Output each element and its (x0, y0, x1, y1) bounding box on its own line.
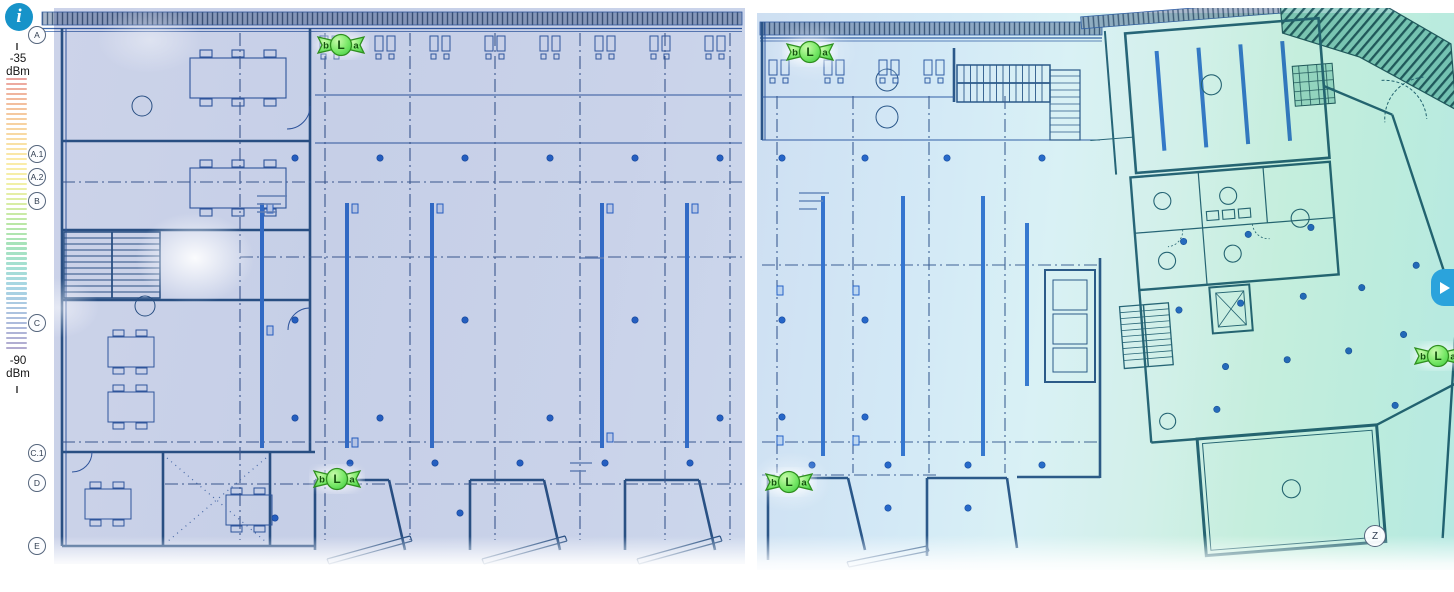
svg-text:L: L (806, 45, 813, 59)
thin-walls (66, 28, 742, 546)
ap-marker[interactable]: b L a (313, 30, 369, 60)
legend-stripe (6, 123, 27, 125)
ap-marker[interactable]: b L a (782, 37, 838, 67)
legend-stripe (6, 78, 27, 80)
legend-stripe (6, 148, 27, 150)
stairs (64, 96, 160, 316)
legend-max-label: -35dBm (0, 53, 36, 78)
legend-stripe (6, 93, 27, 95)
svg-text:a: a (801, 478, 807, 489)
ap-marker[interactable]: b L a (761, 467, 817, 497)
legend-stripe (6, 247, 27, 249)
top-wall-hatch-band (42, 12, 742, 32)
legend-stripe (6, 188, 27, 190)
legend-stripe (6, 332, 27, 334)
expand-panel-button[interactable] (1431, 269, 1454, 306)
symbol-rects (777, 286, 859, 445)
svg-text:a: a (822, 48, 828, 59)
legend-stripe (6, 158, 27, 160)
legend-stripe (6, 223, 27, 225)
legend-stripe (6, 213, 27, 215)
svg-text:L: L (333, 472, 340, 486)
legend-stripe (6, 317, 27, 319)
grid-bubble-A.2: A.2 (28, 168, 46, 186)
legend-stripe (6, 322, 27, 324)
grid-bubble-A.1: A.1 (28, 145, 46, 163)
legend-gradient-scale (6, 78, 27, 352)
legend-stripe (6, 83, 27, 85)
legend-stripe (6, 347, 27, 349)
floorplan-right[interactable] (757, 8, 1454, 575)
legend-stripe (6, 138, 27, 140)
legend-stripe (6, 108, 27, 110)
legend-stripe (6, 183, 27, 185)
legend-stripe (6, 337, 27, 339)
legend-stripe (6, 287, 27, 289)
legend-bottom-tick (16, 386, 18, 393)
ahu-room (1045, 270, 1095, 382)
legend-stripe (6, 208, 27, 210)
svg-text:a: a (349, 475, 355, 486)
grid-bubble-B: B (28, 192, 46, 210)
dock-ramps (327, 536, 722, 564)
legend-stripe (6, 113, 27, 115)
legend-stripe (6, 103, 27, 105)
legend-stripe (6, 282, 27, 284)
grid-bubble-D: D (28, 474, 46, 492)
ap-marker[interactable]: b L a (1410, 341, 1454, 371)
svg-text:b: b (323, 41, 329, 52)
legend-stripe (6, 297, 27, 299)
legend-stripe (6, 133, 27, 135)
floor-cross-marking (167, 458, 266, 542)
legend-stripe (6, 342, 27, 344)
svg-text:L: L (337, 38, 344, 52)
svg-text:b: b (771, 478, 777, 489)
sprinkler-dots (1170, 216, 1431, 425)
symbol-rects (267, 204, 698, 447)
floorplan-right-drawing (757, 8, 1454, 575)
svg-text:a: a (353, 41, 359, 52)
legend-stripe (6, 257, 27, 259)
legend-stripe (6, 193, 27, 195)
info-icon: i (16, 6, 21, 28)
legend-stripe (6, 272, 27, 274)
svg-text:b: b (792, 48, 798, 59)
legend-stripe (6, 218, 27, 220)
legend-stripe (6, 312, 27, 314)
legend-stripe (6, 302, 27, 304)
legend-stripe (6, 267, 27, 269)
legend-stripe (6, 203, 27, 205)
pool-beams (1157, 41, 1290, 151)
play-triangle-icon (1440, 282, 1450, 294)
legend-stripe (6, 292, 27, 294)
furniture (85, 36, 725, 532)
legend-stripe (6, 228, 27, 230)
grid-dash-lines (762, 96, 1100, 475)
legend-stripe (6, 277, 27, 279)
grid-hatch-block (1292, 63, 1335, 106)
legend-stripe (6, 163, 27, 165)
rotated-section (1080, 8, 1454, 563)
legend-stripe (6, 143, 27, 145)
svg-text:b: b (1420, 352, 1426, 363)
svg-text:b: b (319, 475, 325, 486)
grid-bubble-C: C (28, 314, 46, 332)
legend-stripe (6, 173, 27, 175)
legend-stripe (6, 98, 27, 100)
dock-ramp (847, 546, 929, 567)
legend-stripe (6, 88, 27, 90)
skylight-beams (262, 203, 687, 448)
legend-stripe (6, 153, 27, 155)
grid-bubble-Z: Z (1364, 525, 1386, 547)
legend-stripe (6, 178, 27, 180)
floorplan-left[interactable] (30, 8, 745, 570)
svg-text:L: L (1434, 349, 1441, 363)
legend-stripe (6, 168, 27, 170)
svg-text:L: L (785, 475, 792, 489)
legend-stripe (6, 307, 27, 309)
legend-stripe (6, 233, 27, 235)
grid-bubble-A: A (28, 26, 46, 44)
ap-marker[interactable]: b L a (309, 464, 365, 494)
grid-bubble-E: E (28, 537, 46, 555)
legend-min-label: -90dBm (0, 355, 36, 380)
legend-stripe (6, 128, 27, 130)
legend-top-tick (16, 43, 18, 50)
stairs-top (876, 65, 1080, 140)
legend-stripe (6, 198, 27, 200)
floorplan-left-drawing (30, 8, 745, 570)
info-button[interactable]: i (5, 3, 33, 31)
skylight-beams (823, 196, 1027, 456)
legend-stripe (6, 252, 27, 254)
legend-stripe (6, 327, 27, 329)
legend-stripe (6, 238, 27, 240)
legend-stripe (6, 262, 27, 264)
legend-stripe (6, 242, 27, 244)
legend-stripe (6, 118, 27, 120)
wifi-heatmap-viewer: i -35dBm -90dBm (0, 0, 1454, 592)
grid-bubble-C.1: C.1 (28, 444, 46, 462)
svg-text:a: a (1450, 352, 1454, 363)
